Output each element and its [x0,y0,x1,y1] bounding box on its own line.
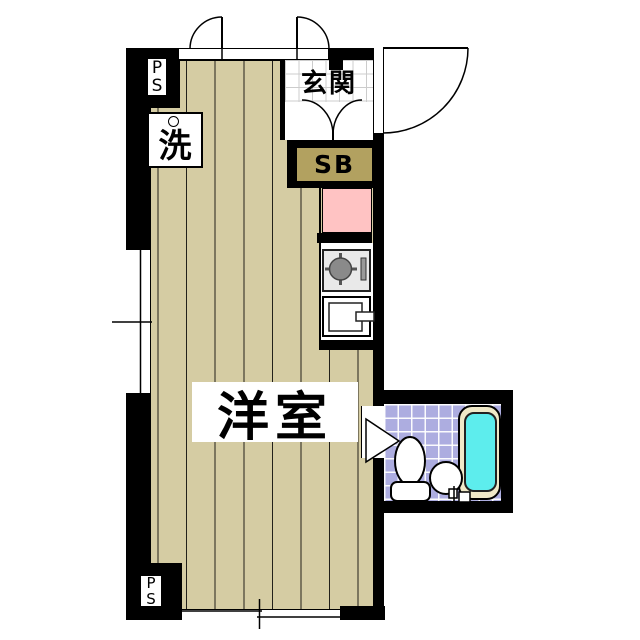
bathroom-right-wall [501,390,513,513]
top-door-left-swing-arc [190,17,222,49]
left-wall-lower [126,393,150,565]
washer-hookup-icon [168,116,179,127]
kitchen-left-partition-line [319,188,321,350]
kitchen-wall-band-bottom [319,340,373,350]
shoebox: SB [297,148,372,181]
bathtub-water [464,412,497,492]
entrance-doorway [373,48,384,133]
top-window-band [178,48,329,60]
pipe-space-top: P S [146,57,168,97]
main-room-label-box: 洋室 [192,382,358,442]
bathroom-bottom-wall [373,501,513,513]
kitchen-counter-pink [322,188,372,233]
kitchen-wall-band-top [317,233,372,243]
front-door-swing-arc [383,48,468,133]
floorplan-canvas: 玄関 SB 洋室 [0,0,640,640]
entrance-pillar [329,58,343,70]
pipe-space-top-label-line1: P [152,59,162,77]
main-room-label: 洋室 [217,375,333,450]
entrance-left-wall [280,60,285,140]
laundry-box: 洗 [147,112,203,168]
shoebox-label: SB [314,150,355,179]
bathroom-doorway [361,406,385,458]
entrance-door-vestibule [285,102,373,140]
stove-unit [322,249,371,292]
top-door-right-swing-arc [297,17,329,49]
pipe-space-bottom-label-line1: P [146,575,155,591]
right-wall [373,133,384,620]
kitchen-sink-unit [322,296,371,337]
pipe-space-top-label-line2: S [152,77,163,95]
pipe-space-bottom-label-line2: S [146,591,156,607]
bathroom-top-wall [373,390,513,405]
pipe-space-bottom: P S [139,574,163,608]
